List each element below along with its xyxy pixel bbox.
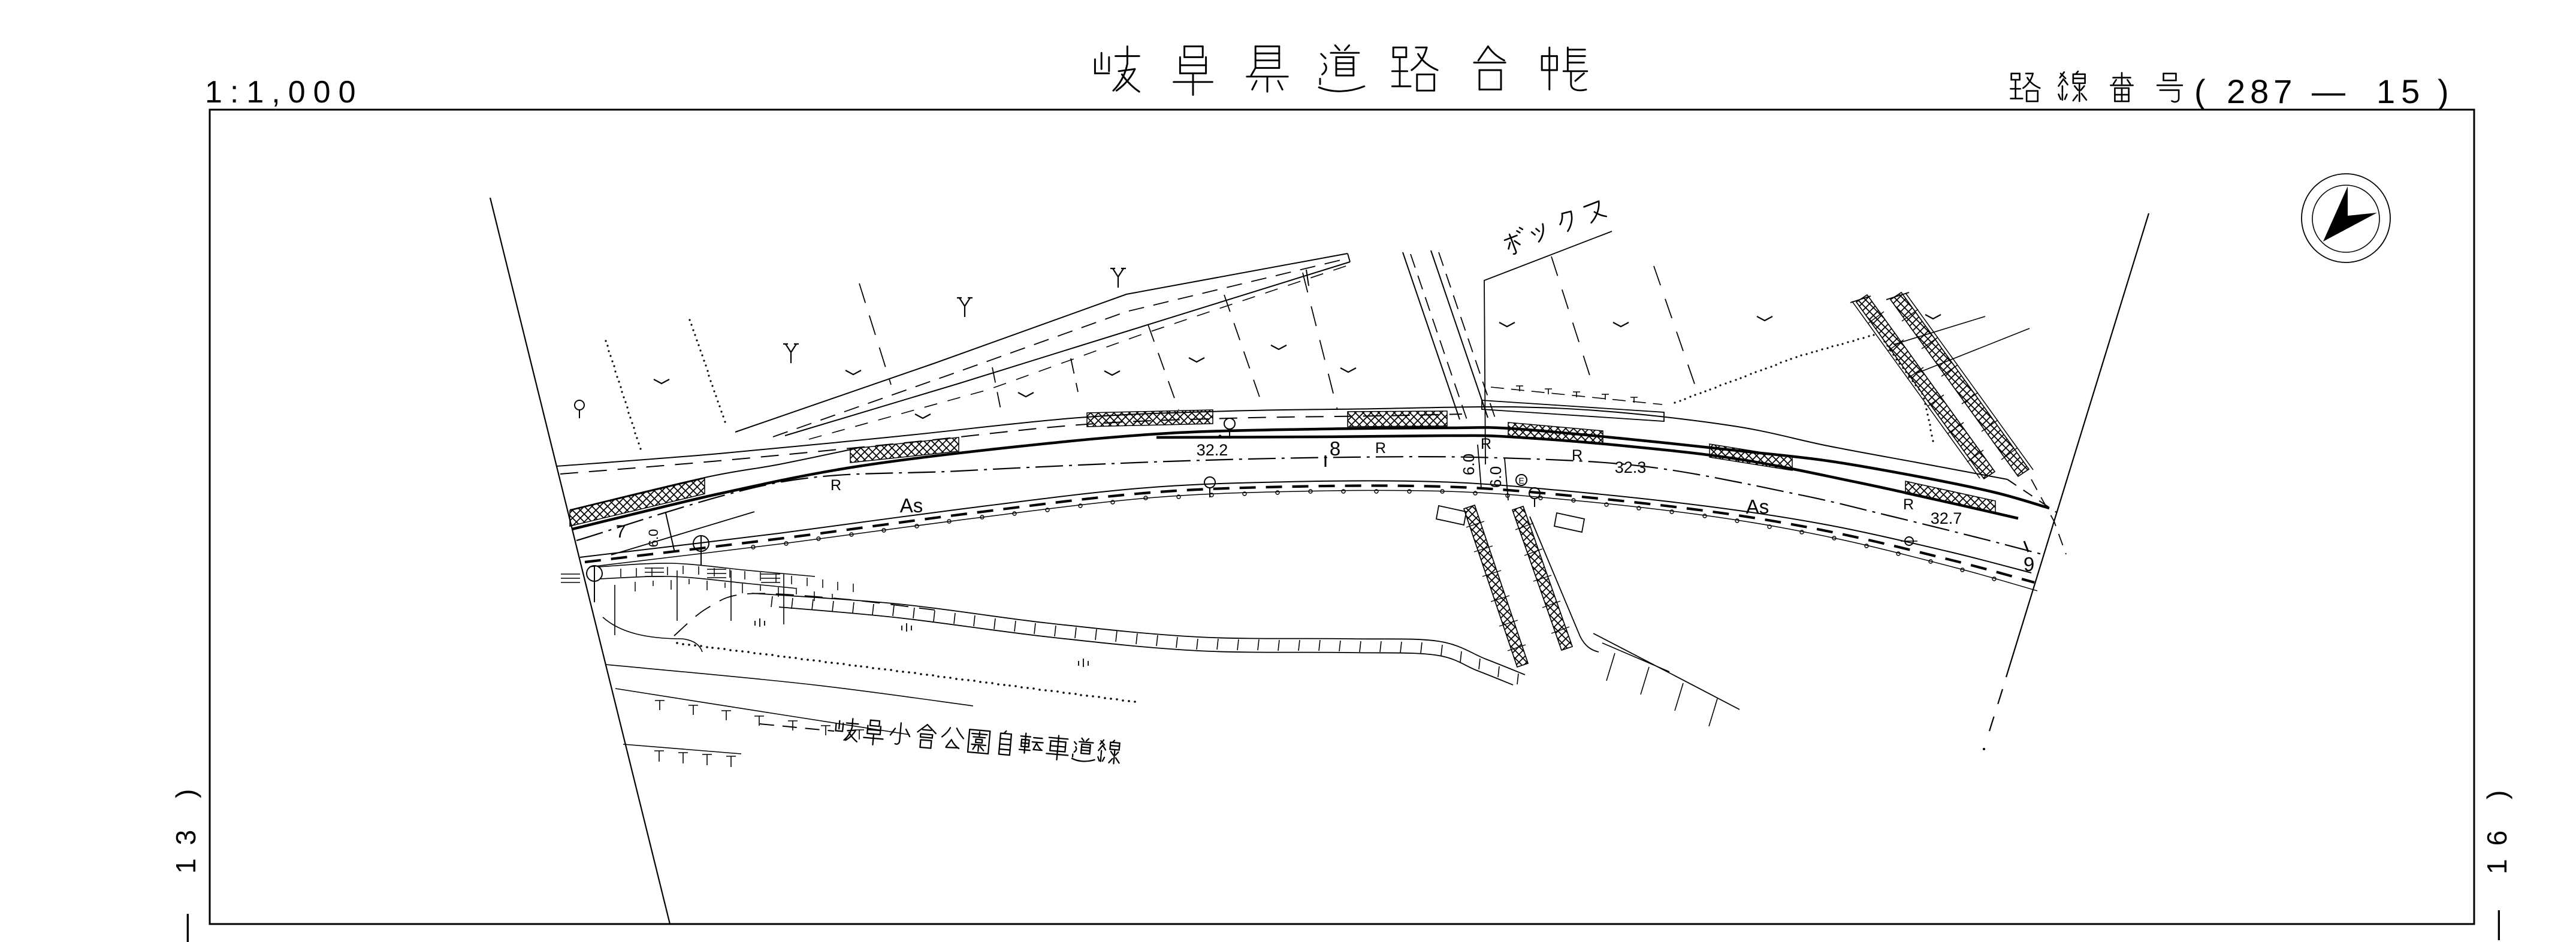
svg-text:(: ( <box>2194 73 2206 110</box>
svg-text:—: — <box>2480 910 2513 940</box>
svg-text:R: R <box>1903 496 1914 513</box>
svg-text:9: 9 <box>2024 553 2034 575</box>
svg-text:): ) <box>2481 790 2512 799</box>
svg-text:16: 16 <box>2481 817 2512 874</box>
svg-text:32.2: 32.2 <box>1197 441 1228 459</box>
svg-text:—: — <box>168 914 202 942</box>
svg-text:8: 8 <box>1330 437 1340 460</box>
svg-text:E: E <box>1518 476 1524 485</box>
svg-text:6.0: 6.0 <box>1460 454 1478 475</box>
svg-text:As: As <box>1746 496 1769 518</box>
svg-text:6.0: 6.0 <box>1487 466 1505 488</box>
svg-text:As: As <box>900 494 923 517</box>
svg-text:—: — <box>2312 73 2345 110</box>
svg-text:R: R <box>1375 440 1386 457</box>
svg-text:R: R <box>1481 436 1491 452</box>
svg-text:): ) <box>2438 73 2449 110</box>
svg-text:15: 15 <box>2376 73 2426 110</box>
svg-text:7: 7 <box>616 522 626 542</box>
svg-text:R: R <box>1572 447 1583 464</box>
svg-text:287: 287 <box>2227 73 2297 110</box>
svg-text:13: 13 <box>170 817 201 874</box>
svg-text:): ) <box>170 789 201 798</box>
svg-text:1:1,000: 1:1,000 <box>205 75 364 110</box>
svg-text:R: R <box>831 477 841 494</box>
svg-text:6.0: 6.0 <box>646 529 661 548</box>
svg-text:32.7: 32.7 <box>1931 509 1962 527</box>
svg-text:32.3: 32.3 <box>1615 458 1647 476</box>
